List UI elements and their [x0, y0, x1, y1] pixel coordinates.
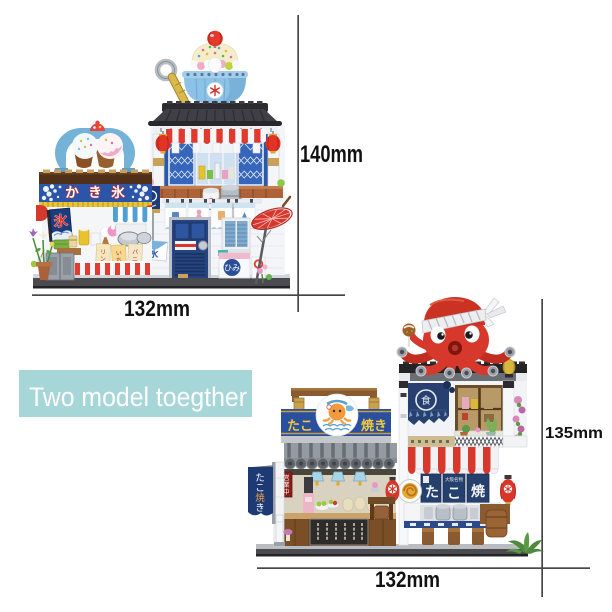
svg-text:たこ: たこ — [287, 418, 313, 433]
svg-text:き: き — [255, 503, 265, 514]
svg-text:大阪名物: 大阪名物 — [445, 476, 463, 483]
svg-text:食: 食 — [421, 394, 431, 407]
svg-text:た: た — [425, 484, 439, 500]
svg-text:氷: 氷 — [53, 212, 69, 229]
svg-text:バ: バ — [132, 249, 138, 256]
svg-text:焼き: 焼き — [361, 418, 387, 433]
svg-text:132mm: 132mm — [375, 567, 440, 592]
svg-text:こ: こ — [447, 485, 461, 501]
svg-text:中: 中 — [283, 488, 289, 496]
svg-text:か: か — [65, 185, 79, 200]
svg-text:135mm: 135mm — [545, 425, 603, 442]
svg-text:焼: 焼 — [471, 483, 485, 499]
svg-text:業: 業 — [283, 481, 289, 489]
svg-text:氷: 氷 — [111, 184, 125, 200]
svg-text:Two model toegther: Two model toegther — [29, 382, 247, 412]
svg-text:営: 営 — [283, 474, 289, 482]
svg-text:リ: リ — [100, 250, 106, 256]
svg-text:き: き — [88, 185, 102, 200]
svg-text:い: い — [116, 250, 122, 257]
svg-text:140mm: 140mm — [300, 141, 363, 168]
svg-text:132mm: 132mm — [124, 296, 190, 321]
svg-text:ひみ: ひみ — [224, 264, 240, 273]
